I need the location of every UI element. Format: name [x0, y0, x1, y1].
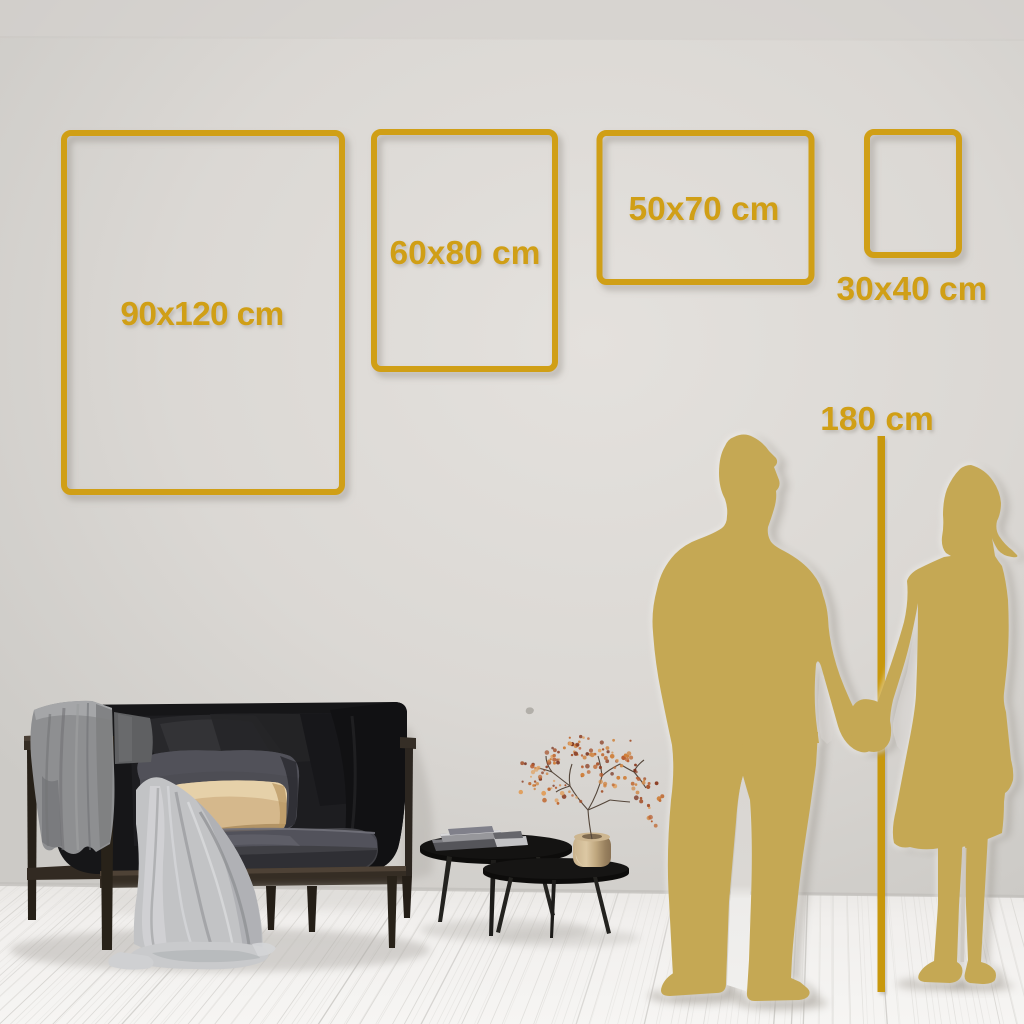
svg-text:180 cm: 180 cm — [820, 401, 934, 438]
svg-text:30x40 cm: 30x40 cm — [837, 271, 988, 308]
svg-text:90x120 cm: 90x120 cm — [120, 296, 283, 333]
svg-text:50x70 cm: 50x70 cm — [629, 191, 780, 228]
svg-text:60x80 cm: 60x80 cm — [390, 235, 541, 272]
